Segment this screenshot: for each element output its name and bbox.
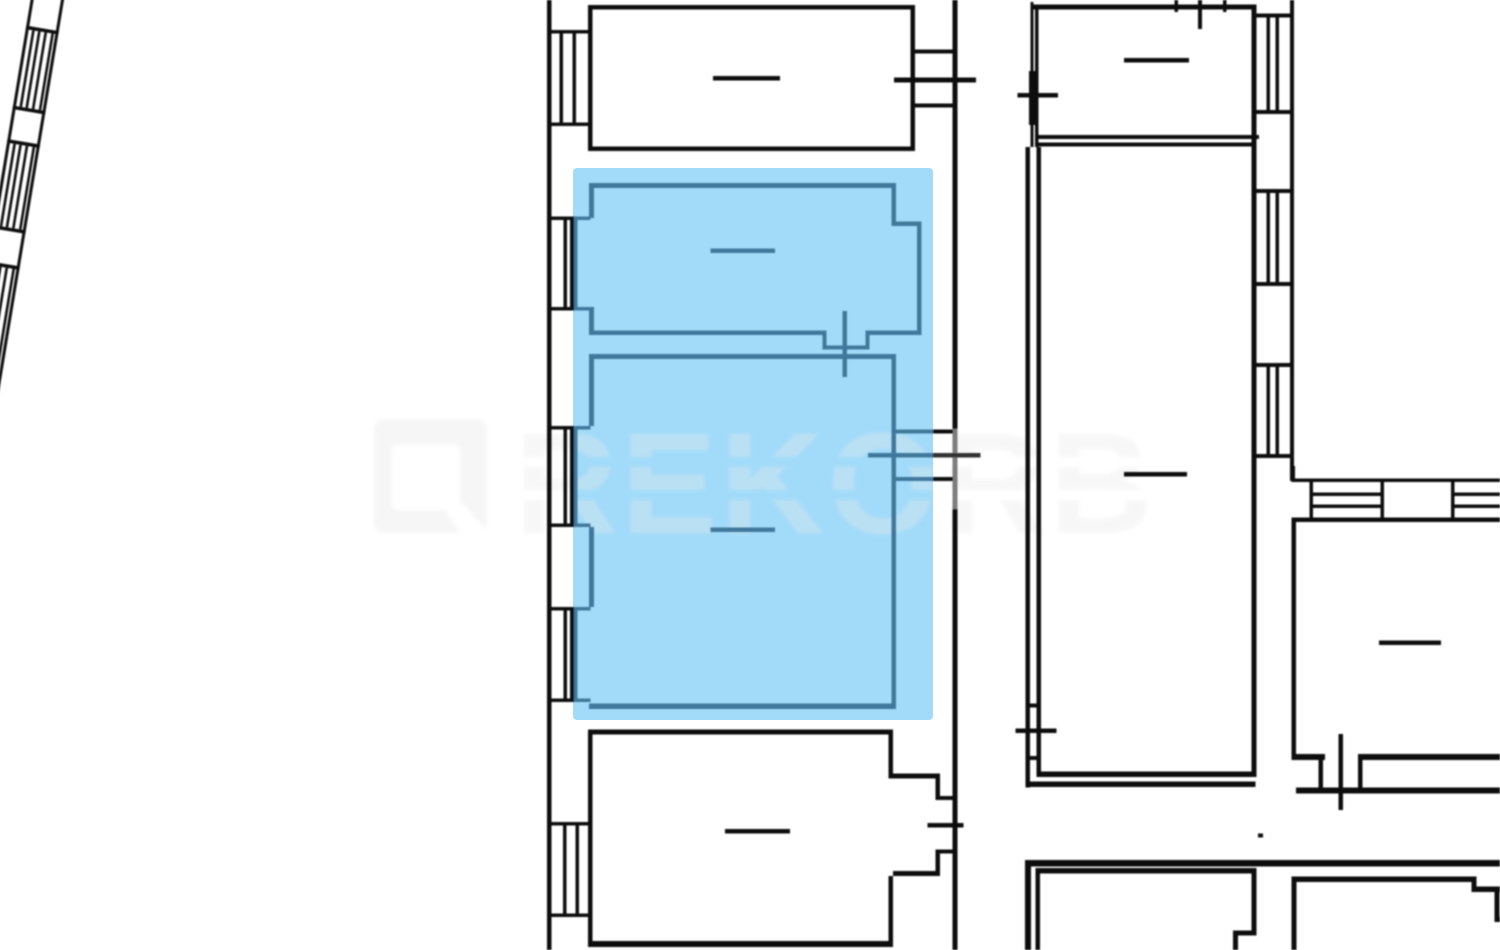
svg-text:REKORB: REKORB — [514, 403, 1156, 564]
